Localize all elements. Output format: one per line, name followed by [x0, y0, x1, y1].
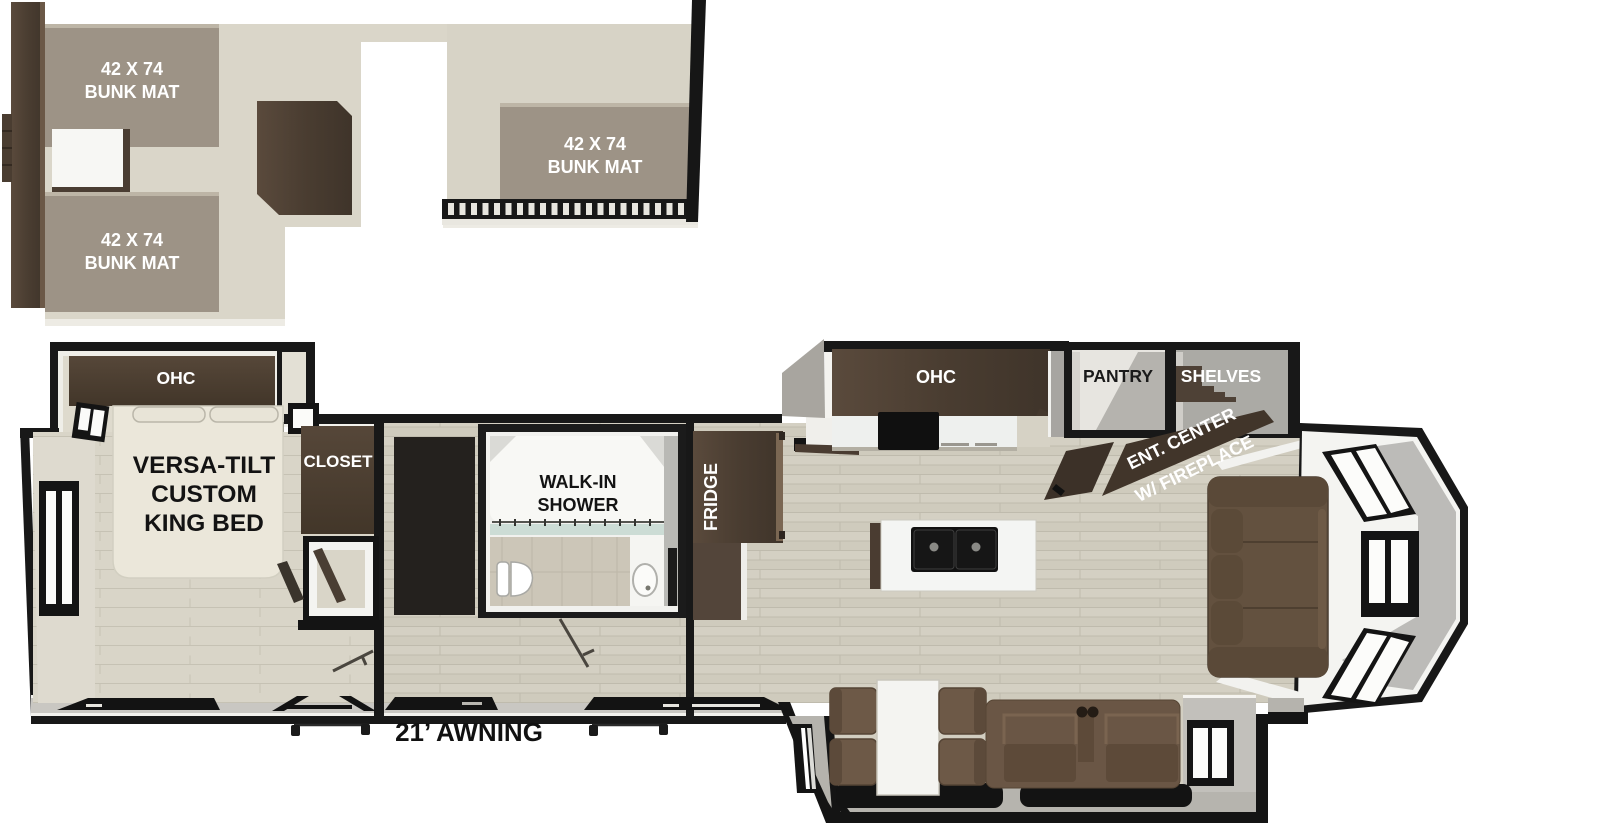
svg-text:PANTRY: PANTRY — [1083, 366, 1153, 386]
svg-text:SHOWER: SHOWER — [538, 495, 619, 515]
svg-text:BUNK MAT: BUNK MAT — [85, 253, 180, 273]
svg-text:CUSTOM: CUSTOM — [151, 481, 257, 508]
svg-text:WALK-IN: WALK-IN — [540, 472, 617, 492]
svg-text:CLOSET: CLOSET — [304, 452, 374, 471]
svg-text:42 X 74: 42 X 74 — [564, 134, 626, 154]
svg-text:42 X 74: 42 X 74 — [101, 230, 163, 250]
svg-text:21’ AWNING: 21’ AWNING — [395, 717, 543, 747]
svg-text:SHELVES: SHELVES — [1181, 366, 1261, 386]
svg-text:VERSA-TILT: VERSA-TILT — [133, 452, 275, 479]
svg-text:OHC: OHC — [916, 367, 956, 387]
svg-text:BUNK MAT: BUNK MAT — [85, 82, 180, 102]
svg-text:OHC: OHC — [157, 368, 196, 388]
svg-text:BUNK MAT: BUNK MAT — [548, 157, 643, 177]
svg-text:42 X 74: 42 X 74 — [101, 59, 163, 79]
svg-text:FRIDGE: FRIDGE — [701, 463, 721, 531]
svg-text:KING BED: KING BED — [144, 510, 264, 537]
